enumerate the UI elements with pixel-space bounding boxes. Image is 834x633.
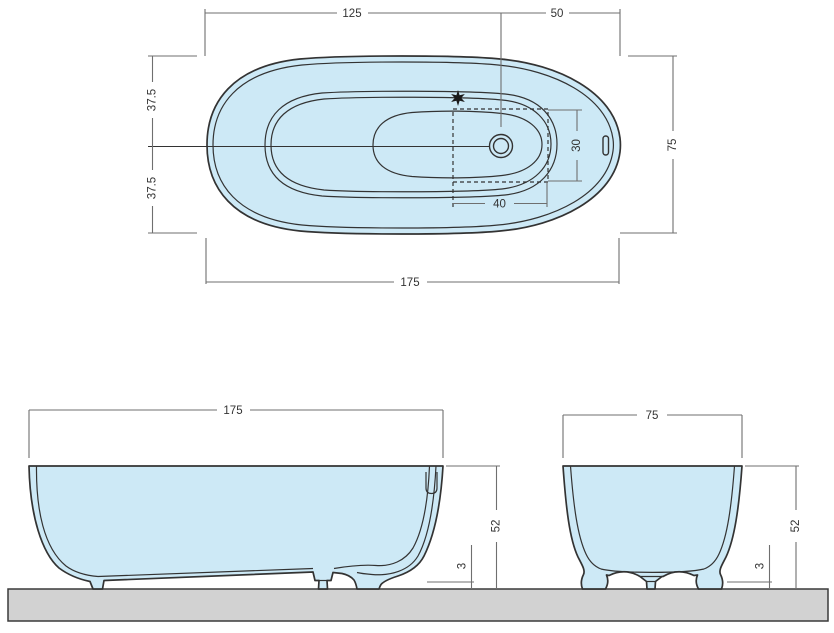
dim-label-52-side: 52 <box>790 520 802 533</box>
dim-front-height: 52 <box>446 466 503 589</box>
dim-label-40: 40 <box>493 199 506 211</box>
dim-label-37-5-lower: 37.5 <box>147 177 159 199</box>
dim-plan-bottom: 175 <box>206 238 619 289</box>
ground <box>8 589 828 621</box>
dim-side-width: 75 <box>563 410 742 458</box>
side-view: 75 52 3 <box>563 410 802 589</box>
dim-label-175-plan: 175 <box>400 277 419 289</box>
ground-slab <box>8 589 828 621</box>
dim-plan-right: 75 <box>620 56 679 233</box>
dim-label-75-side: 75 <box>646 410 659 422</box>
dim-label-37-5-upper: 37.5 <box>147 89 159 111</box>
dim-label-75-plan: 75 <box>667 139 679 152</box>
front-tub-body <box>29 466 443 589</box>
front-view: 175 52 3 <box>29 405 503 589</box>
dim-side-floor-gap: 3 <box>727 545 772 589</box>
dim-label-50: 50 <box>551 8 564 20</box>
dim-label-3-side: 3 <box>755 563 767 569</box>
dim-label-175-front: 175 <box>223 405 242 417</box>
dim-label-52-front: 52 <box>491 520 503 533</box>
dim-label-30: 30 <box>571 139 583 152</box>
dim-plan-left: 37.5 37.5 <box>147 56 197 233</box>
dim-label-125: 125 <box>342 8 361 20</box>
side-tub-body <box>563 466 742 589</box>
drawing-page: 125 50 37.5 37.5 75 175 <box>0 0 834 633</box>
dim-front-length: 175 <box>29 405 443 458</box>
plan-view: 125 50 37.5 37.5 75 175 <box>147 8 680 289</box>
dim-label-3-front: 3 <box>457 563 469 569</box>
dim-front-floor-gap: 3 <box>427 545 474 589</box>
tub-outer-shell <box>207 56 620 234</box>
dim-side-height: 52 <box>745 466 802 589</box>
technical-drawing-canvas: 125 50 37.5 37.5 75 175 <box>0 0 834 633</box>
